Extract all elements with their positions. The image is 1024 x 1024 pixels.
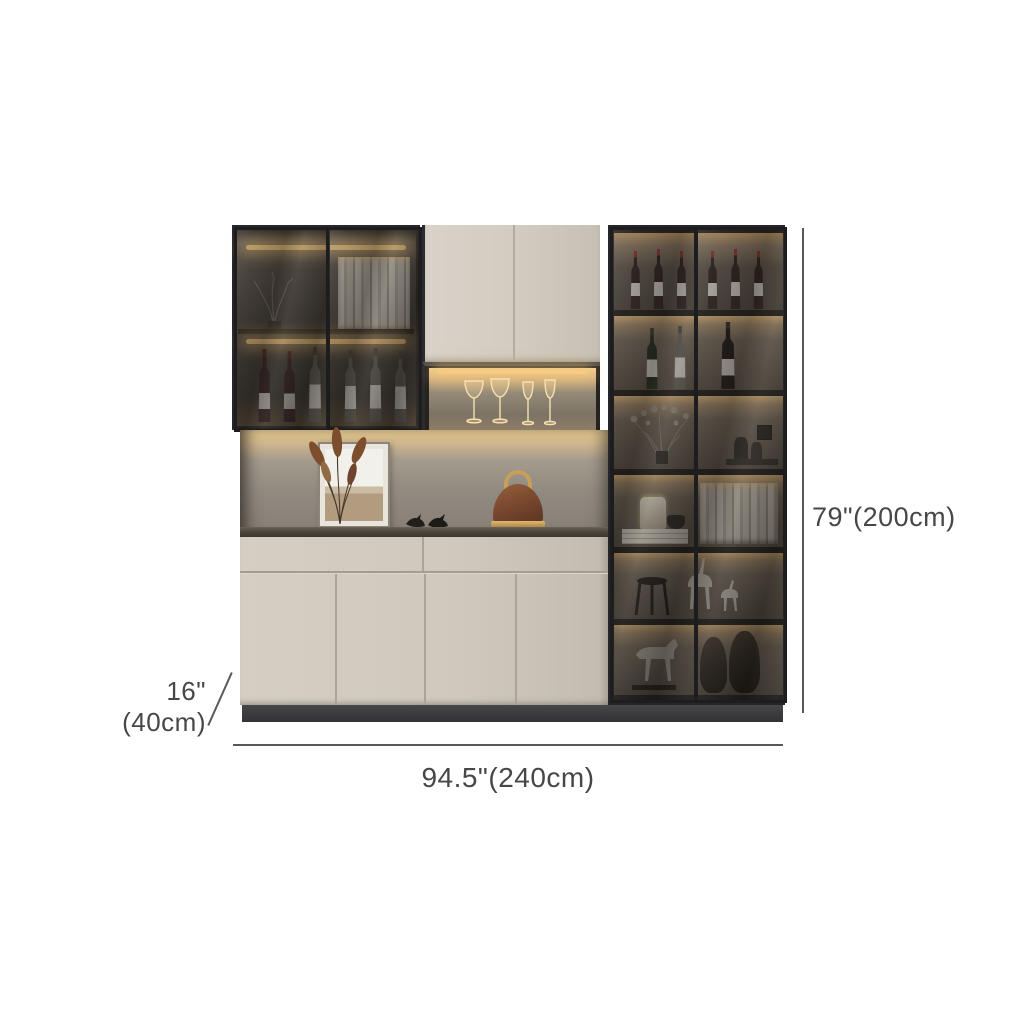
handbag-body bbox=[493, 484, 543, 523]
dried-plant bbox=[292, 426, 388, 530]
right-glass-door bbox=[326, 227, 422, 432]
drawer-seam bbox=[422, 537, 424, 571]
wine-cabinet bbox=[232, 225, 785, 722]
height-dimension-line bbox=[802, 228, 804, 713]
drawer-groove bbox=[240, 571, 610, 573]
door-seam bbox=[513, 225, 515, 362]
depth-dimension-line bbox=[207, 672, 232, 726]
open-display-shelf bbox=[240, 430, 610, 537]
door-seam bbox=[424, 574, 426, 705]
width-dimension-line bbox=[233, 744, 783, 746]
handbag bbox=[493, 470, 543, 527]
right-glass-cabinet bbox=[608, 225, 785, 705]
door-seam bbox=[335, 574, 337, 705]
upper-cabinet-doors bbox=[422, 225, 600, 362]
counter-top bbox=[240, 527, 610, 537]
plinth bbox=[242, 705, 783, 722]
width-dimension-label: 94.5"(240cm) bbox=[233, 762, 783, 794]
left-glass-door bbox=[610, 227, 697, 703]
height-dimension-label: 79"(200cm) bbox=[812, 502, 956, 533]
led-strip bbox=[437, 370, 588, 374]
left-glass-cabinet bbox=[232, 225, 420, 430]
left-glass-door bbox=[234, 227, 330, 432]
depth-dimension-label: 16"(40cm) bbox=[86, 676, 206, 738]
lower-cabinet bbox=[240, 537, 610, 705]
right-glass-door bbox=[695, 227, 787, 703]
display-niche bbox=[422, 362, 600, 430]
product-dimension-image: 79"(200cm) 94.5"(240cm) 16"(40cm) bbox=[0, 0, 1024, 1024]
door-seam bbox=[515, 574, 517, 705]
wine-glasses bbox=[461, 378, 571, 430]
